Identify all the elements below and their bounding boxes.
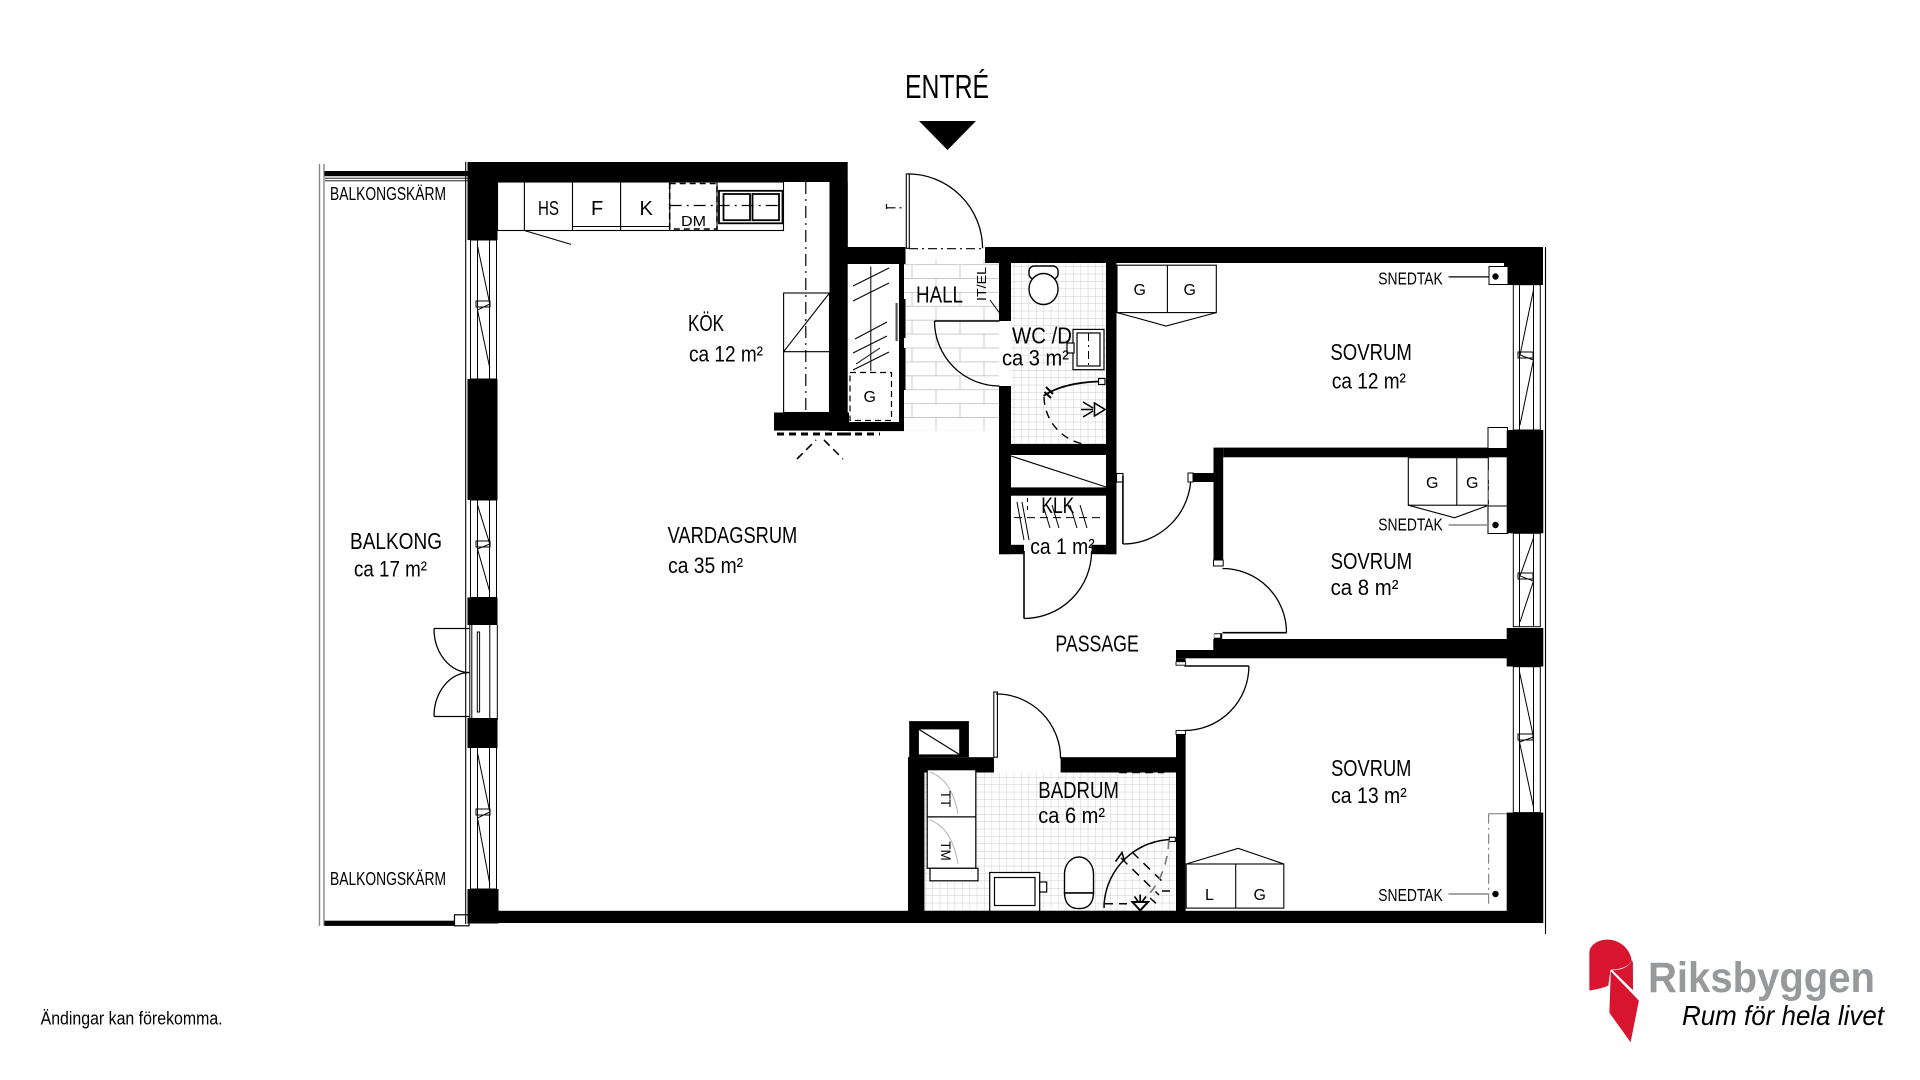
svg-text:KÖK: KÖK [688,310,724,336]
svg-text:ca 13 m²: ca 13 m² [1331,783,1407,808]
svg-text:IT/EL: IT/EL [974,267,989,301]
svg-text:TT: TT [938,791,953,808]
svg-text:HS: HS [538,198,559,220]
svg-text:F: F [591,198,603,220]
svg-text:SNEDTAK: SNEDTAK [1378,515,1443,535]
svg-text:DM: DM [681,214,706,230]
svg-text:G: G [1426,475,1438,492]
svg-text:TM: TM [938,841,953,861]
svg-text:K: K [640,198,654,220]
svg-text:BALKONGSKÄRM: BALKONGSKÄRM [330,184,446,204]
svg-text:G: G [1134,282,1146,299]
svg-text:SNEDTAK: SNEDTAK [1378,269,1443,289]
svg-text:ca 35 m²: ca 35 m² [668,553,743,578]
svg-text:PASSAGE: PASSAGE [1055,631,1138,657]
svg-text:SOVRUM: SOVRUM [1331,548,1413,574]
svg-text:G: G [1254,887,1266,904]
svg-text:VARDAGSRUM: VARDAGSRUM [668,522,798,548]
svg-text:BALKONGSKÄRM: BALKONGSKÄRM [330,869,446,889]
svg-text:Riksbyggen: Riksbyggen [1648,955,1875,1002]
svg-text:G: G [1466,475,1478,492]
svg-text:HALL: HALL [916,282,963,308]
svg-text:ca 1 m²: ca 1 m² [1030,534,1095,559]
svg-text:G: G [864,389,876,406]
svg-text:BALKONG: BALKONG [350,528,442,554]
svg-text:ca 12 m²: ca 12 m² [689,342,763,367]
svg-text:SOVRUM: SOVRUM [1331,755,1411,781]
svg-text:Rum för hela livet: Rum för hela livet [1682,1000,1885,1031]
svg-text:ENTRÉ: ENTRÉ [905,68,989,105]
svg-text:Ändingar kan förekomma.: Ändingar kan förekomma. [41,1009,223,1029]
svg-text:SOVRUM: SOVRUM [1330,339,1412,365]
svg-text:ca 6 m²: ca 6 m² [1038,803,1105,828]
svg-text:ca 3 m²: ca 3 m² [1002,346,1069,371]
svg-text:ca 17 m²: ca 17 m² [354,557,427,582]
svg-text:G: G [1184,282,1196,299]
svg-text:L: L [1205,887,1214,904]
svg-text:BADRUM: BADRUM [1038,777,1119,803]
svg-text:KLK: KLK [1041,493,1074,518]
svg-text:ca 12 m²: ca 12 m² [1332,369,1406,394]
svg-text:SNEDTAK: SNEDTAK [1378,885,1443,905]
svg-text:ca 8 m²: ca 8 m² [1331,575,1399,600]
